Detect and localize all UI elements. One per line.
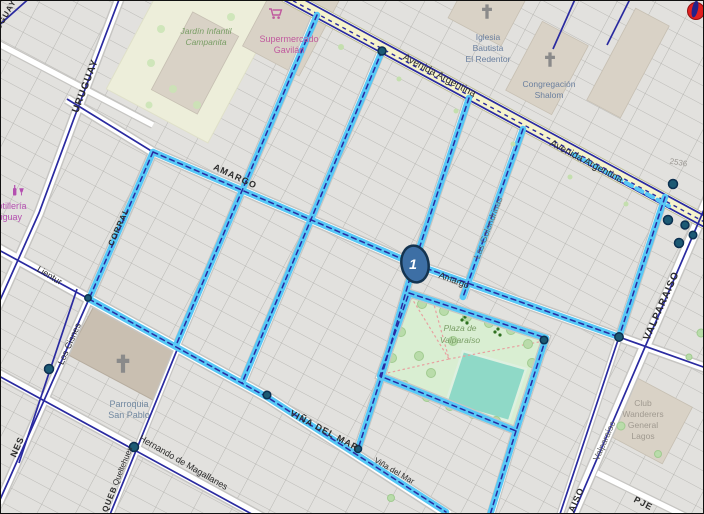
poi-wanderers-line3: General (628, 420, 658, 430)
poi-iglesia-line3: El Redentor (466, 54, 511, 64)
poi-wanderers-line2: Wanderers (622, 409, 663, 419)
poi-plaza-line1: Plaza de (443, 323, 476, 333)
poi-wanderers-line1: Club (634, 398, 652, 408)
poi-jardin-line2: Campanita (185, 37, 226, 47)
poi-congregacion-line2: Shalom (535, 90, 564, 100)
stop-marker-label: 1 (409, 256, 417, 272)
poi-iglesia-line1: Iglesia (476, 32, 501, 42)
poi-parroquia-line1: Parroquia (109, 399, 148, 409)
poi-congregacion-line1: Congregación (523, 79, 576, 89)
poi-jardin-line1: Jardín Infantil (179, 26, 232, 36)
map-viewport[interactable]: URUGUAY UGUAY AMARGO Amargo Avenida Arge… (0, 0, 704, 514)
poi-supermercado-line1: Supermercado (259, 34, 318, 44)
poi-botilleria-line2: Uruguay (1, 212, 23, 222)
poi-supermercado-line2: Gavilán (274, 45, 305, 55)
poi-plaza-line2: Valparaíso (440, 335, 481, 345)
poi-parroquia-line2: San Pablo (108, 410, 150, 420)
poi-botilleria-line1: Botillería (1, 201, 27, 211)
poi-wanderers-line4: Lagos (631, 431, 654, 441)
map-canvas[interactable]: URUGUAY UGUAY AMARGO Amargo Avenida Arge… (1, 1, 704, 514)
poi-iglesia-line2: Bautista (473, 43, 504, 53)
